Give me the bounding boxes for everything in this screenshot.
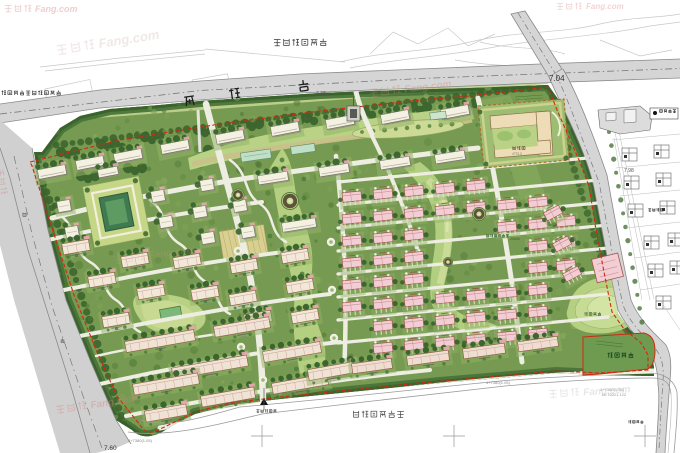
svg-text:Fang.com: Fang.com bbox=[586, 2, 624, 11]
svg-text:7.04: 7.04 bbox=[549, 74, 565, 83]
svg-text:7.98: 7.98 bbox=[624, 168, 634, 174]
svg-text:7.60: 7.60 bbox=[104, 445, 117, 452]
svg-text:4+7380(1.05): 4+7380(1.05) bbox=[486, 380, 511, 385]
svg-text:20000: 20000 bbox=[510, 237, 520, 241]
svg-text:4+7380(1.05): 4+7380(1.05) bbox=[128, 438, 153, 443]
svg-text:Fang.com: Fang.com bbox=[35, 4, 78, 14]
svg-text:7.38: 7.38 bbox=[316, 91, 326, 97]
svg-text:4775.3: 4775.3 bbox=[512, 152, 522, 156]
